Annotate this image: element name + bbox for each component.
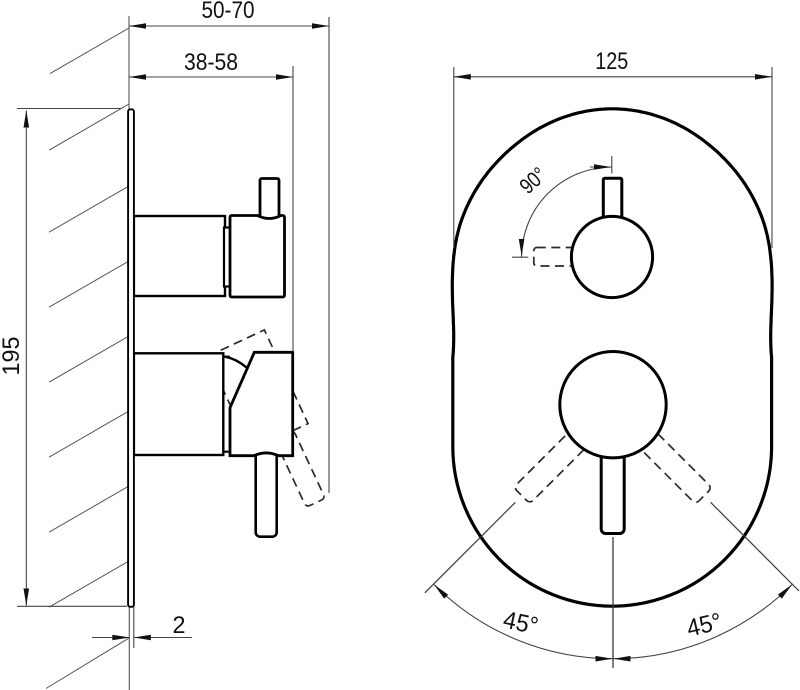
svg-text:50-70: 50-70 xyxy=(202,0,255,24)
svg-text:195: 195 xyxy=(0,337,25,376)
svg-text:125: 125 xyxy=(595,48,628,75)
svg-text:38-58: 38-58 xyxy=(184,49,238,76)
svg-text:2: 2 xyxy=(173,612,186,639)
